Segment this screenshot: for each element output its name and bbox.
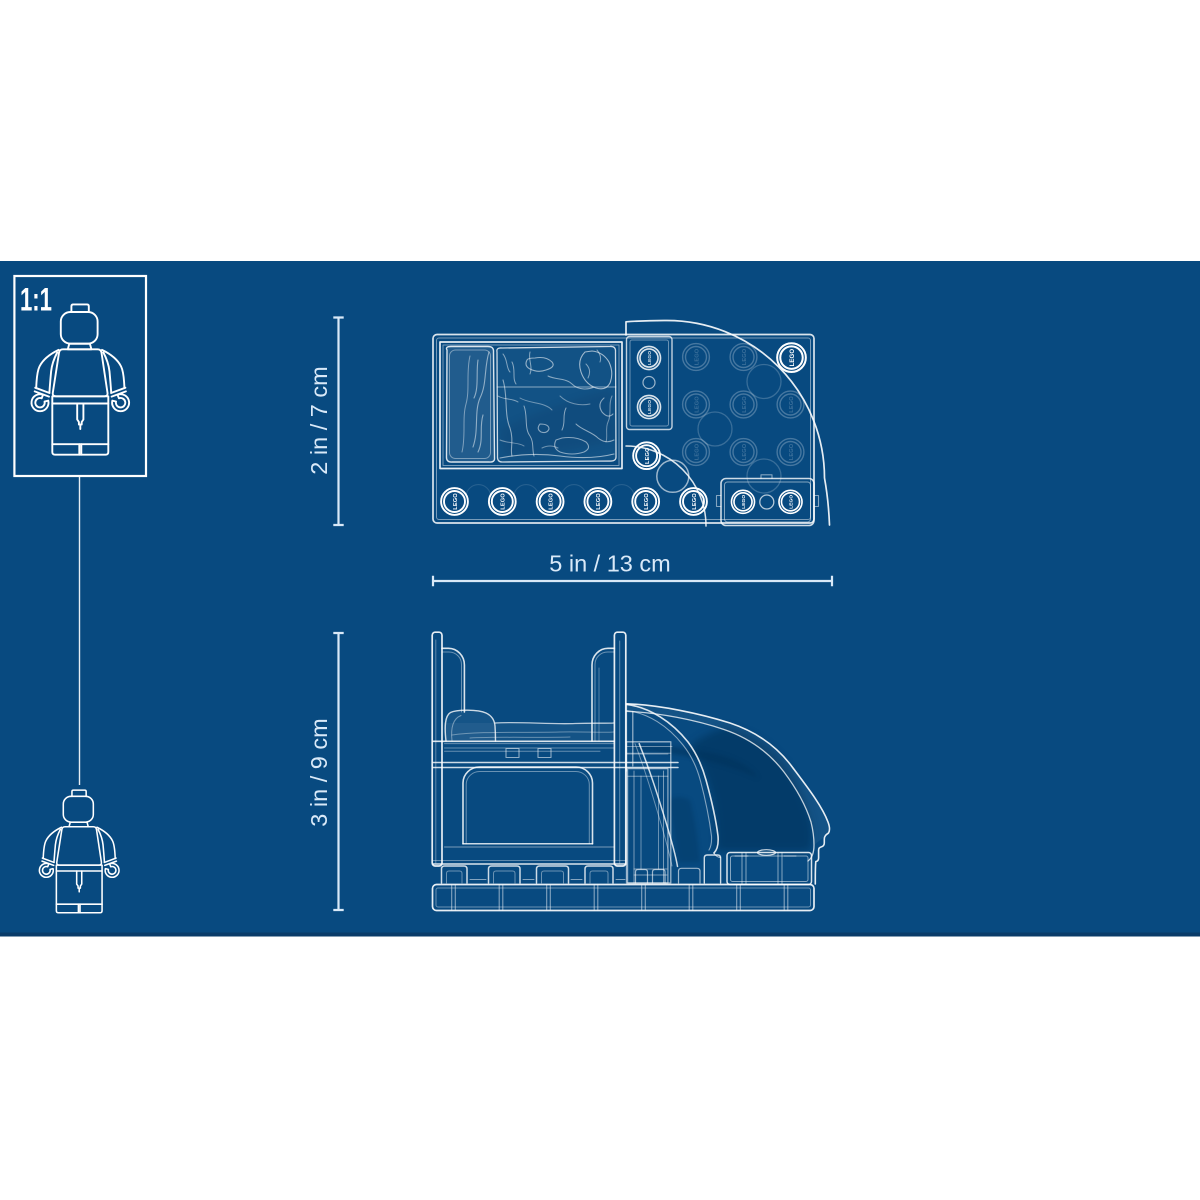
svg-text:3 in / 9 cm: 3 in / 9 cm bbox=[306, 718, 332, 826]
svg-text:2 in / 7 cm: 2 in / 7 cm bbox=[306, 366, 332, 474]
svg-text:5 in / 13 cm: 5 in / 13 cm bbox=[549, 551, 670, 577]
svg-text:1:1: 1:1 bbox=[20, 282, 52, 318]
